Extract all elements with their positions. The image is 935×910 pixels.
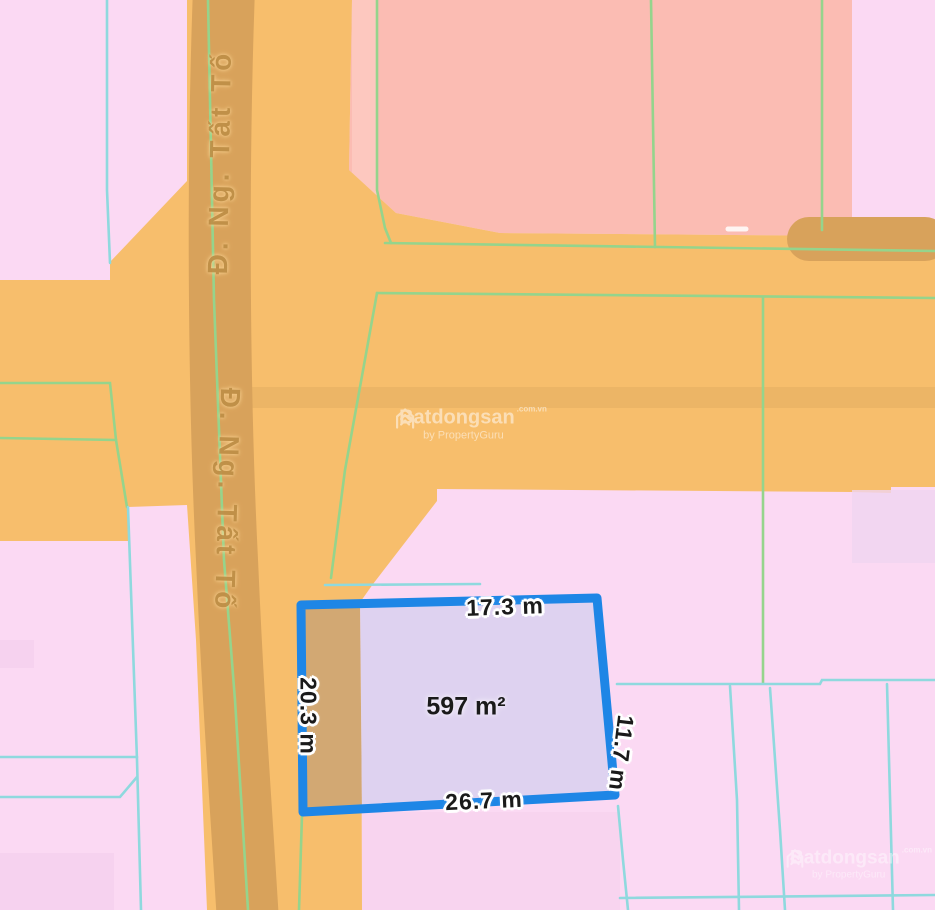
road-pavement-faint <box>252 387 935 408</box>
watermark-byline: by PropertyGuru <box>812 870 932 881</box>
parcel-dim-top: 17.3 m <box>466 592 545 622</box>
salmon-strip <box>352 0 377 205</box>
watermark-center: Batdongsan .com.vn by PropertyGuru <box>393 407 547 442</box>
road-pavement-end <box>787 217 935 261</box>
parcel-dim-left: 20.3 m <box>295 677 322 755</box>
road-label-bottom: Đ. Ng. Tất Tố <box>208 387 246 612</box>
road-label-top: Đ. Ng. Tất Tố <box>202 49 238 274</box>
watermark-suffix: .com.vn <box>902 846 932 855</box>
map-layers <box>0 0 935 910</box>
watermark-brand: Batdongsan <box>790 848 900 870</box>
parcel-dim-bottom: 26.7 m <box>445 786 524 816</box>
salmon-block <box>349 0 852 236</box>
watermark-suffix: .com.vn <box>517 405 547 414</box>
map-canvas[interactable]: Đ. Ng. Tất Tố Đ. Ng. Tất Tố 17.3 m 20.3 … <box>0 0 935 910</box>
watermark-bottom-right: Batdongsan .com.vn by PropertyGuru <box>784 848 932 881</box>
watermark-byline: by PropertyGuru <box>423 430 547 442</box>
parcel-area-label: 597 m² <box>426 693 505 722</box>
